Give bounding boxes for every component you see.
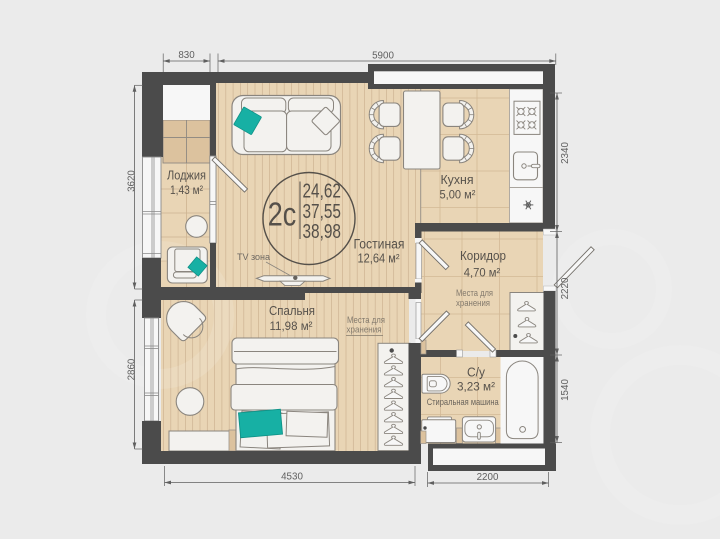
svg-text:3620: 3620: [126, 170, 137, 192]
svg-text:С/у: С/у: [467, 365, 485, 380]
svg-text:12,64 м²: 12,64 м²: [358, 252, 400, 266]
svg-text:Спальня: Спальня: [269, 303, 315, 318]
svg-text:4,70 м²: 4,70 м²: [464, 266, 501, 280]
svg-text:2с: 2с: [268, 196, 297, 233]
svg-text:2200: 2200: [477, 472, 499, 483]
svg-text:1,43 м²: 1,43 м²: [170, 183, 203, 197]
svg-text:Коридор: Коридор: [460, 248, 506, 263]
svg-text:5900: 5900: [372, 51, 394, 62]
svg-text:хранения: хранения: [456, 298, 490, 309]
svg-text:38,98: 38,98: [303, 220, 342, 243]
svg-text:хранения: хранения: [347, 325, 382, 336]
svg-text:1540: 1540: [560, 379, 571, 401]
svg-text:TV зона: TV зона: [237, 252, 270, 262]
svg-text:4530: 4530: [281, 472, 303, 483]
svg-text:Гостиная: Гостиная: [354, 237, 405, 252]
svg-text:Лоджия: Лоджия: [167, 168, 206, 183]
svg-text:2860: 2860: [126, 358, 137, 380]
svg-text:Кухня: Кухня: [441, 172, 474, 187]
svg-text:Стиральная машина: Стиральная машина: [427, 397, 500, 408]
svg-text:2340: 2340: [560, 142, 571, 164]
svg-text:830: 830: [178, 50, 195, 61]
svg-text:5,00 м²: 5,00 м²: [440, 188, 476, 202]
svg-text:2220: 2220: [560, 277, 571, 299]
svg-text:11,98 м²: 11,98 м²: [270, 319, 313, 333]
svg-text:3,23 м²: 3,23 м²: [457, 380, 495, 394]
